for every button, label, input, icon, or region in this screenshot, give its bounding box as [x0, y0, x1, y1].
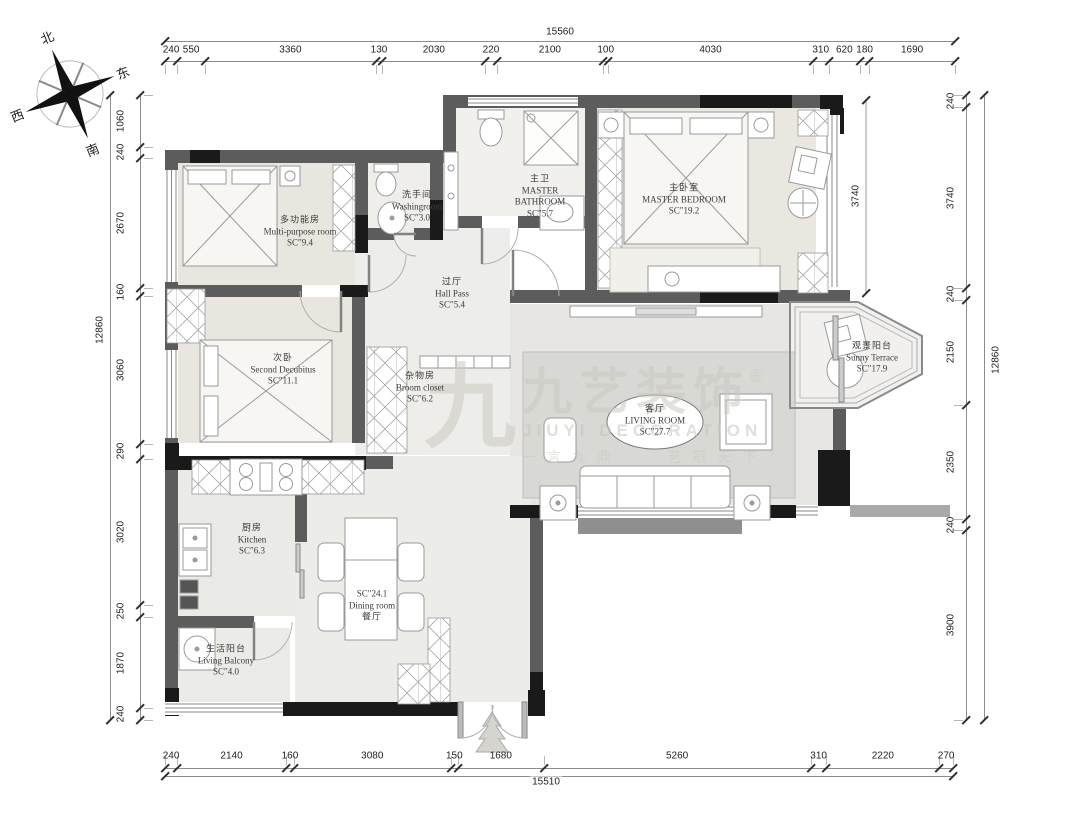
dim-label: 1690: [901, 45, 923, 56]
dim-label: 2150: [946, 341, 957, 363]
dim-extension: [954, 405, 963, 406]
dim-extension: [144, 605, 153, 606]
dim-label: 1870: [116, 652, 127, 674]
dim-extension: [485, 65, 486, 74]
dim-label: 160: [282, 751, 299, 762]
dim-label: 3020: [116, 521, 127, 543]
dim-extension: [144, 459, 153, 460]
dim-label: 2220: [872, 751, 894, 762]
compass-south-label: 南: [84, 141, 102, 160]
dim-extension: [497, 65, 498, 74]
dim-extension: [144, 158, 153, 159]
dim-label: 12860: [991, 346, 1002, 374]
dim-extension: [144, 708, 153, 709]
dim-label: 2670: [116, 212, 127, 234]
dim-line: [165, 61, 955, 62]
dim-line: [110, 95, 111, 720]
dim-label: 240: [946, 516, 957, 533]
dim-label: 250: [116, 603, 127, 620]
dim-label: 15510: [530, 777, 562, 788]
dim-label: 2140: [220, 751, 242, 762]
dim-extension: [144, 296, 153, 297]
dim-label: 150: [446, 751, 463, 762]
dim-label: 620: [836, 45, 853, 56]
dim-label: 310: [812, 45, 829, 56]
dim-label: 12860: [95, 316, 106, 344]
dim-label: 3080: [361, 751, 383, 762]
dim-label: 4030: [699, 45, 721, 56]
dim-extension: [860, 65, 861, 74]
dim-extension: [205, 65, 206, 74]
dim-extension: [869, 65, 870, 74]
dim-extension: [144, 617, 153, 618]
dim-label: 2100: [539, 45, 561, 56]
dim-label: 240: [946, 92, 957, 109]
dim-label: 3360: [279, 45, 301, 56]
dim-label: 550: [183, 45, 200, 56]
dim-line: [966, 95, 967, 720]
dim-label: 3060: [116, 359, 127, 381]
dim-extension: [144, 288, 153, 289]
dim-extension: [165, 65, 166, 74]
dim-extension: [382, 65, 383, 74]
dim-extension: [829, 65, 830, 74]
compass: 北 东 南 西: [6, 18, 138, 164]
dim-extension: [144, 147, 153, 148]
dim-extension: [544, 756, 545, 765]
dim-extension: [376, 65, 377, 74]
dim-extension: [955, 65, 956, 74]
dim-extension: [954, 720, 963, 721]
dim-label: 290: [116, 443, 127, 460]
floor-plan: [0, 0, 1080, 820]
dim-line: [984, 95, 985, 720]
dim-label: 240: [163, 751, 180, 762]
compass-east-label: 东: [114, 64, 132, 83]
dim-label: 2030: [423, 45, 445, 56]
dim-label: 1680: [490, 751, 512, 762]
dim-label: 1060: [116, 110, 127, 132]
dim-label: 130: [371, 45, 388, 56]
dim-extension: [144, 444, 153, 445]
dim-line: [140, 95, 141, 720]
dim-line: [165, 41, 955, 42]
dim-label: 240: [163, 45, 180, 56]
dim-label: 15560: [546, 27, 574, 38]
dim-label: 3900: [946, 614, 957, 636]
dim-extension: [144, 720, 153, 721]
dim-label: 240: [946, 286, 957, 303]
compass-north-label: 北: [38, 29, 56, 48]
compass-west-label: 西: [8, 106, 26, 125]
dim-label: 240: [116, 706, 127, 723]
dim-label: 180: [856, 45, 873, 56]
dim-extension: [177, 65, 178, 74]
dim-label: 3740: [946, 186, 957, 208]
dim-label: 2350: [946, 451, 957, 473]
dim-label: 100: [597, 45, 614, 56]
dim-extension: [144, 95, 153, 96]
dim-label: 160: [116, 283, 127, 300]
dim-label: 240: [116, 144, 127, 161]
dim-label: 270: [938, 751, 955, 762]
dim-label: 5260: [666, 751, 688, 762]
dim-extension: [603, 65, 604, 74]
dim-extension: [608, 65, 609, 74]
dim-label: 3740: [851, 185, 862, 207]
dim-label: 220: [483, 45, 500, 56]
floorplan-sheet: { "compass": {"n": "北", "e": "东", "s": "…: [0, 0, 1080, 820]
dim-label: 310: [810, 751, 827, 762]
dim-extension: [813, 65, 814, 74]
